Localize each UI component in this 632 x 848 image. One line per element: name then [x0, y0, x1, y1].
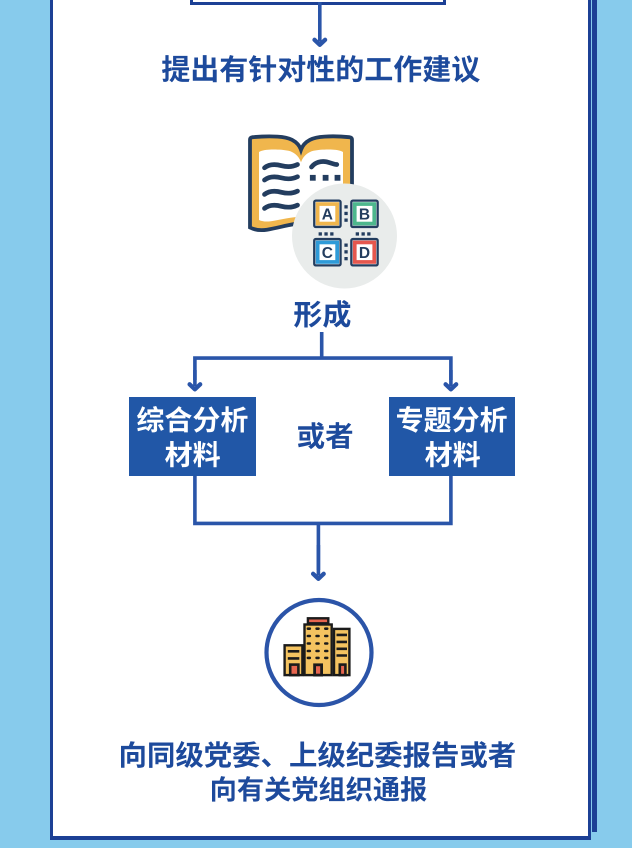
svg-text:A: A: [322, 206, 333, 223]
svg-text:C: C: [322, 245, 333, 262]
svg-text:D: D: [359, 245, 370, 262]
svg-text:B: B: [359, 206, 370, 223]
